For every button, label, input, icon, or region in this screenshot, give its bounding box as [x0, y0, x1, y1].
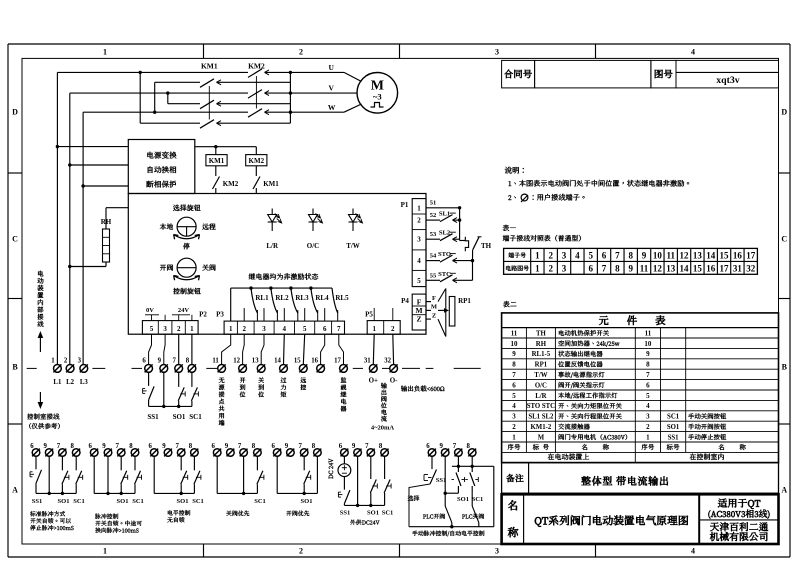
svg-text:SO1: SO1 [667, 424, 680, 431]
svg-text:11: 11 [511, 329, 518, 337]
svg-text:10: 10 [644, 340, 652, 348]
svg-text:52: 52 [430, 212, 437, 219]
svg-text:3: 3 [512, 413, 516, 421]
svg-text:P2: P2 [199, 311, 207, 319]
svg-text:6: 6 [30, 443, 34, 450]
svg-text:9: 9 [102, 443, 106, 450]
svg-text:10: 10 [511, 340, 519, 348]
svg-text:4: 4 [691, 547, 695, 556]
svg-text:8: 8 [252, 443, 256, 450]
svg-text:9: 9 [642, 251, 647, 261]
svg-text:12: 12 [653, 264, 663, 274]
svg-text:9: 9 [512, 350, 516, 358]
svg-text:9: 9 [285, 443, 289, 450]
svg-text:RP1: RP1 [535, 362, 548, 369]
svg-text:32: 32 [384, 358, 391, 365]
svg-text:2: 2 [548, 251, 553, 261]
svg-text:O+: O+ [369, 377, 378, 385]
svg-text:16: 16 [706, 264, 716, 274]
svg-text:9: 9 [43, 443, 47, 450]
svg-text:SO1: SO1 [177, 498, 189, 505]
svg-text:5: 5 [588, 251, 593, 261]
svg-text:9: 9 [158, 358, 162, 365]
svg-text:6: 6 [646, 381, 650, 389]
svg-text:1: 1 [535, 251, 540, 261]
svg-text:O-: O- [390, 377, 398, 385]
svg-text:8: 8 [186, 358, 190, 365]
svg-text:V: V [328, 84, 334, 93]
svg-text:6: 6 [602, 251, 607, 261]
svg-text:2: 2 [646, 423, 650, 431]
svg-text:8: 8 [615, 264, 620, 274]
svg-text:15: 15 [720, 251, 730, 261]
svg-text:3: 3 [562, 251, 567, 261]
svg-text:3: 3 [78, 358, 82, 365]
svg-text:7: 7 [453, 443, 457, 450]
svg-text:C: C [781, 235, 787, 244]
svg-text:5: 5 [417, 277, 421, 285]
svg-text:3: 3 [495, 48, 499, 57]
svg-text:6: 6 [271, 443, 275, 450]
svg-text:9: 9 [352, 443, 356, 450]
svg-text:RL4: RL4 [315, 294, 329, 302]
svg-text:6: 6 [148, 443, 152, 450]
svg-text:KM2: KM2 [223, 180, 239, 188]
svg-text:10: 10 [653, 251, 663, 261]
svg-text:O/C: O/C [535, 382, 547, 389]
svg-text:STO: STO [438, 251, 451, 258]
svg-text:7: 7 [175, 443, 179, 450]
svg-text:RL1-5: RL1-5 [532, 351, 551, 358]
svg-text:1: 1 [103, 48, 107, 57]
svg-text:11: 11 [640, 264, 649, 274]
svg-text:16: 16 [733, 251, 743, 261]
svg-text:17: 17 [720, 264, 730, 274]
svg-text:T/W: T/W [534, 372, 547, 379]
svg-text:F: F [417, 297, 422, 306]
svg-text:9: 9 [225, 443, 229, 450]
svg-text:SO1: SO1 [367, 510, 379, 517]
svg-text:TH: TH [536, 330, 547, 337]
svg-text:1: 1 [646, 433, 650, 441]
svg-text:53: 53 [430, 231, 437, 238]
svg-text:17: 17 [334, 358, 341, 365]
svg-text:2: 2 [64, 358, 68, 365]
svg-text:5: 5 [512, 392, 516, 400]
svg-text:4: 4 [646, 402, 650, 410]
svg-text:7: 7 [115, 443, 119, 450]
svg-text:SS1: SS1 [32, 498, 42, 505]
svg-text:12: 12 [233, 358, 240, 365]
svg-text:9: 9 [439, 443, 443, 450]
svg-text:Z: Z [432, 312, 436, 319]
svg-text:5: 5 [150, 325, 154, 333]
svg-text:3: 3 [495, 547, 499, 556]
svg-text:A: A [12, 486, 18, 495]
svg-text:12: 12 [680, 251, 690, 261]
svg-text:2: 2 [417, 217, 421, 225]
svg-text:SL2: SL2 [439, 230, 451, 237]
svg-text:16: 16 [311, 358, 318, 365]
svg-text:RL5: RL5 [335, 294, 349, 302]
svg-text:3: 3 [163, 325, 167, 333]
svg-text:5: 5 [646, 392, 650, 400]
svg-text:RL2: RL2 [275, 294, 289, 302]
svg-text:6: 6 [426, 443, 430, 450]
svg-text:15: 15 [693, 264, 703, 274]
svg-text:2: 2 [512, 423, 516, 431]
svg-text:RL1: RL1 [255, 294, 269, 302]
svg-text:2: 2 [177, 325, 181, 333]
svg-text:2: 2 [299, 547, 303, 556]
svg-text:D: D [781, 108, 787, 117]
svg-text:6: 6 [88, 443, 92, 450]
svg-text:8: 8 [628, 251, 633, 261]
svg-text:T/W: T/W [346, 242, 360, 250]
svg-text:6: 6 [512, 381, 516, 389]
svg-text:O/C: O/C [307, 242, 319, 250]
svg-text:7: 7 [615, 251, 620, 261]
svg-text:51: 51 [430, 200, 437, 207]
svg-text:7: 7 [602, 264, 607, 274]
svg-text:6: 6 [323, 325, 327, 333]
svg-text:7: 7 [365, 443, 369, 450]
svg-text:P4: P4 [401, 297, 409, 305]
svg-text:M: M [431, 304, 437, 311]
svg-text:3: 3 [646, 413, 650, 421]
svg-text:6: 6 [339, 443, 343, 450]
svg-text:2: 2 [242, 325, 246, 333]
svg-text:8: 8 [466, 443, 470, 450]
svg-text:11: 11 [212, 358, 219, 365]
svg-text:KM1-2: KM1-2 [531, 424, 552, 431]
svg-text:SC1: SC1 [73, 498, 85, 505]
svg-text:7: 7 [298, 443, 302, 450]
svg-text:3: 3 [417, 236, 421, 244]
svg-text:1: 1 [512, 433, 516, 441]
svg-text:3: 3 [262, 325, 266, 333]
svg-text:SC1: SC1 [132, 498, 144, 505]
svg-text:6: 6 [588, 264, 593, 274]
svg-text:14: 14 [680, 264, 690, 274]
svg-text:55: 55 [430, 273, 437, 280]
svg-text:SC1: SC1 [192, 498, 204, 505]
svg-text:STC: STC [438, 271, 451, 278]
svg-text:6: 6 [211, 443, 215, 450]
svg-text:17: 17 [746, 251, 756, 261]
svg-text:SO1: SO1 [457, 496, 469, 503]
svg-text:RH: RH [536, 341, 547, 348]
svg-text:L/R: L/R [266, 242, 279, 250]
svg-text:M: M [538, 434, 545, 441]
svg-text:4~20mA: 4~20mA [371, 425, 395, 432]
svg-text:KM2: KM2 [249, 157, 265, 165]
svg-text:A: A [781, 486, 787, 495]
svg-text:L/R: L/R [535, 393, 546, 400]
svg-text:RL3: RL3 [295, 294, 309, 302]
svg-text:F: F [432, 295, 436, 302]
svg-text:SC1: SC1 [189, 413, 202, 421]
svg-text:SC1: SC1 [472, 496, 484, 503]
svg-text:SL1 SL2: SL1 SL2 [528, 414, 554, 421]
svg-text:TH: TH [481, 242, 492, 250]
svg-text:P1: P1 [401, 201, 409, 209]
svg-text:8: 8 [70, 443, 74, 450]
svg-text:4: 4 [283, 325, 287, 333]
svg-text:8: 8 [646, 361, 650, 369]
svg-text:54: 54 [430, 253, 437, 260]
svg-text:8: 8 [379, 443, 383, 450]
svg-text:L2: L2 [66, 379, 75, 386]
svg-text:6: 6 [142, 358, 146, 365]
svg-text:13: 13 [252, 358, 259, 365]
svg-text:9: 9 [162, 443, 166, 450]
svg-text:~3: ~3 [373, 92, 382, 102]
svg-text:B: B [782, 363, 788, 372]
svg-text:L3: L3 [80, 379, 89, 386]
svg-text:1: 1 [417, 204, 421, 212]
svg-text:KM1: KM1 [201, 61, 218, 70]
svg-text:8: 8 [512, 361, 516, 369]
svg-text:24V: 24V [178, 307, 190, 314]
svg-text:L1: L1 [53, 379, 62, 386]
svg-text:D: D [12, 108, 18, 117]
svg-text:SO1: SO1 [117, 498, 129, 505]
svg-text:2: 2 [391, 325, 395, 333]
svg-text:15: 15 [294, 358, 301, 365]
svg-text:SO1: SO1 [301, 498, 313, 505]
svg-text:8: 8 [189, 443, 193, 450]
svg-text:8: 8 [129, 443, 133, 450]
svg-text:C: C [12, 235, 18, 244]
svg-text:2: 2 [548, 264, 553, 274]
svg-text:0V: 0V [146, 307, 154, 314]
svg-text:14: 14 [706, 251, 716, 261]
svg-text:4: 4 [512, 402, 516, 410]
svg-text:32: 32 [746, 264, 756, 274]
svg-text:1: 1 [51, 358, 55, 365]
svg-text:SC1: SC1 [254, 498, 266, 505]
svg-text:9: 9 [628, 264, 633, 274]
svg-text:W: W [328, 103, 336, 112]
svg-text:13: 13 [693, 251, 703, 261]
svg-text:31: 31 [364, 358, 371, 365]
svg-text:9: 9 [646, 350, 650, 358]
svg-text:31: 31 [733, 264, 743, 274]
svg-text:14: 14 [274, 358, 281, 365]
svg-text:4: 4 [417, 257, 421, 265]
svg-text:13: 13 [666, 264, 676, 274]
svg-text:P3: P3 [216, 311, 224, 319]
svg-text:7: 7 [238, 443, 242, 450]
svg-text:11: 11 [666, 251, 675, 261]
svg-text:7: 7 [646, 371, 650, 379]
svg-text:STO STC: STO STC [527, 403, 555, 410]
svg-text:1: 1 [229, 325, 233, 333]
svg-text:7: 7 [337, 325, 341, 333]
svg-text:SS1: SS1 [147, 413, 159, 421]
svg-text:SS1: SS1 [668, 434, 680, 441]
svg-text:SO1: SO1 [173, 413, 186, 421]
svg-text:KM2: KM2 [248, 61, 265, 70]
svg-text:4: 4 [575, 251, 580, 261]
svg-text:8: 8 [312, 443, 316, 450]
svg-text:KM1: KM1 [209, 157, 225, 165]
svg-text:1: 1 [190, 325, 194, 333]
svg-text:SS1: SS1 [340, 510, 350, 517]
svg-text:KM1: KM1 [263, 180, 279, 188]
svg-text:SC1: SC1 [382, 510, 394, 517]
svg-text:Z: Z [416, 315, 421, 324]
svg-text:4: 4 [691, 48, 695, 57]
svg-text:SO1: SO1 [58, 498, 70, 505]
svg-text:P5: P5 [365, 311, 373, 319]
svg-text:11: 11 [645, 329, 652, 337]
svg-text:SL1: SL1 [439, 211, 450, 218]
svg-text:RP1: RP1 [458, 297, 471, 305]
svg-text:2: 2 [299, 48, 303, 57]
svg-text:1: 1 [535, 264, 540, 274]
svg-text:1: 1 [372, 325, 376, 333]
svg-text:3: 3 [562, 264, 567, 274]
svg-text:SC1: SC1 [667, 414, 680, 421]
svg-text:1: 1 [103, 547, 107, 556]
svg-text:7: 7 [57, 443, 61, 450]
svg-text:B: B [12, 363, 18, 372]
svg-text:5: 5 [303, 325, 307, 333]
svg-text:7: 7 [512, 371, 516, 379]
svg-text:7: 7 [172, 358, 176, 365]
svg-text:xqt3v: xqt3v [716, 75, 740, 86]
svg-text:U: U [328, 63, 334, 72]
